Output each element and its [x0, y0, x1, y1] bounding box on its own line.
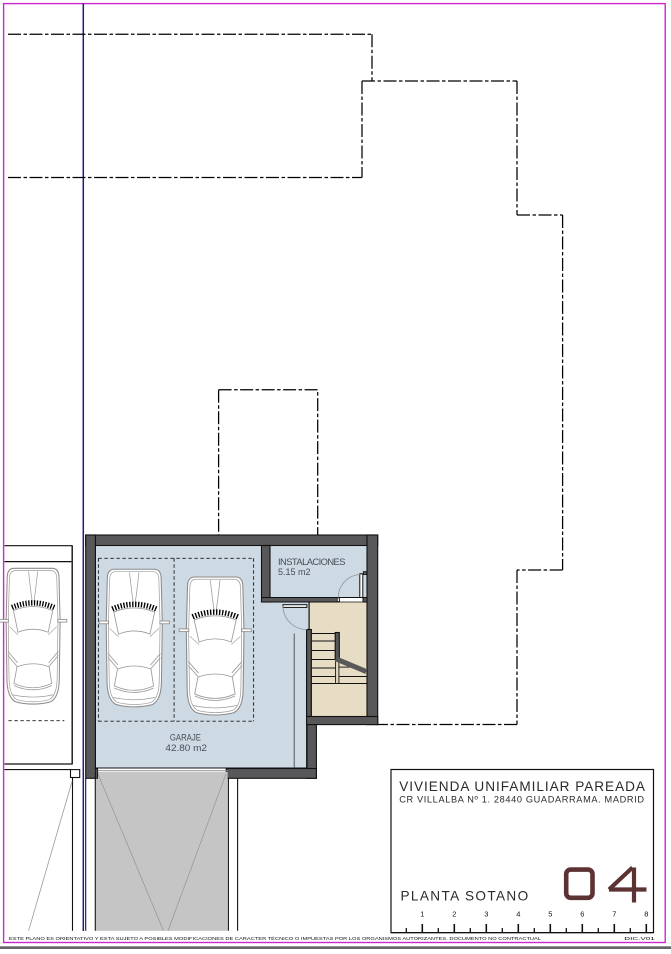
svg-text:2: 2 [452, 910, 456, 919]
svg-text:7: 7 [612, 910, 616, 919]
svg-text:5.15 m2: 5.15 m2 [278, 566, 311, 577]
svg-text:5: 5 [548, 910, 552, 919]
svg-text:PLANTA SOTANO: PLANTA SOTANO [401, 889, 529, 904]
svg-text:3: 3 [484, 910, 488, 919]
svg-text:8: 8 [644, 910, 648, 919]
svg-text:1: 1 [420, 910, 424, 919]
svg-text:CR VILLALBA Nº 1. 28440 GUADAR: CR VILLALBA Nº 1. 28440 GUADARRAMA. MADR… [399, 794, 644, 804]
svg-text:VIVIENDA UNIFAMILIAR PAREADA: VIVIENDA UNIFAMILIAR PAREADA [399, 779, 646, 794]
svg-text:42.80 m2: 42.80 m2 [165, 742, 207, 753]
svg-text:4: 4 [516, 910, 520, 919]
svg-text:ESTE PLANO ES ORIENTATIVO Y ES: ESTE PLANO ES ORIENTATIVO Y ESTA SUJETO … [9, 935, 541, 942]
svg-text:6: 6 [580, 910, 584, 919]
svg-text:DIC.V01: DIC.V01 [624, 936, 655, 942]
